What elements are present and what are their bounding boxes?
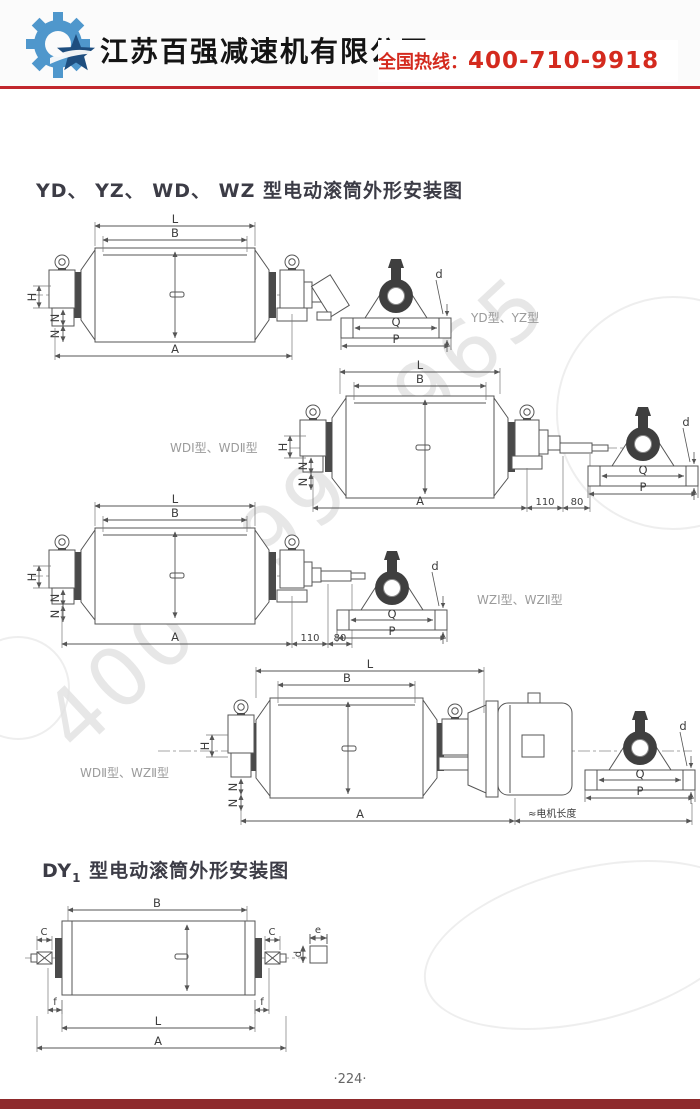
- dim-label-d: d: [293, 951, 304, 957]
- dim-label-motor-length: ≈电机长度: [528, 807, 576, 820]
- caption-wd2-wz2: WDⅡ型、WZⅡ型: [80, 766, 169, 780]
- dim-label-L: L: [367, 657, 374, 671]
- dim-label-B: B: [171, 506, 179, 520]
- dim-label-H: H: [198, 742, 212, 751]
- dim-label-e: e: [315, 925, 321, 936]
- dim-label-A: A: [171, 630, 179, 644]
- dim-label-H: H: [25, 573, 39, 582]
- dim-label-L: L: [172, 212, 179, 226]
- dim-label-A: A: [154, 1034, 162, 1048]
- dim-label-Q: Q: [387, 607, 396, 621]
- dim-label-A: A: [171, 342, 179, 356]
- section-title-yd-yz-wd-wz: YD、 YZ、 WD、 WZ 型电动滚筒外形安装图: [36, 176, 463, 203]
- dim-label-B: B: [153, 896, 161, 910]
- dim-label-d: d: [682, 415, 689, 429]
- dim-label-B: B: [171, 226, 179, 240]
- bearing-pedestal-view: Q P d: [337, 551, 447, 644]
- dim-label-N: N: [296, 462, 310, 471]
- shaft-end-detail: [303, 934, 327, 963]
- page-header: 江苏百强减速机有限公司 全国热线： 400-710-9918: [0, 0, 700, 86]
- hotline-label: 全国热线：: [378, 48, 468, 74]
- dim-label-P: P: [393, 332, 400, 346]
- dim-label-d: d: [679, 719, 686, 733]
- dim-label-L: L: [172, 492, 179, 506]
- dim-label-N: N: [48, 594, 62, 603]
- bearing-pedestal-view: Q P d: [585, 711, 695, 804]
- dim-label-L: L: [155, 1014, 162, 1028]
- dim-label-Q: Q: [391, 315, 400, 329]
- bearing-pedestal-view: Q P d: [341, 259, 451, 352]
- caption-wz1-wz2: WZⅠ型、WZⅡ型: [477, 593, 563, 607]
- header-divider: [0, 86, 700, 89]
- dim-label-80: 80: [334, 633, 347, 644]
- dim-label-d: d: [435, 267, 442, 281]
- dim-label-N: N: [226, 783, 240, 792]
- dim-label-d: d: [431, 559, 438, 573]
- drum-outline: [25, 921, 307, 995]
- dim-label-C: C: [41, 927, 48, 938]
- dim-label-H: H: [276, 443, 290, 452]
- caption-wd1-wd2: WDⅠ型、WDⅡ型: [170, 441, 258, 455]
- dim-label-P: P: [389, 624, 396, 638]
- bearing-pedestal-view: Q P d: [588, 407, 698, 500]
- dim-label-N: N: [226, 799, 240, 808]
- dim-label-Q: Q: [635, 767, 644, 781]
- dim-label-P: P: [637, 784, 644, 798]
- dim-label-f: f: [53, 997, 57, 1008]
- dim-label-L: L: [417, 358, 424, 372]
- drawing-dy1-type: B C C f f L A e d: [15, 888, 385, 1063]
- hotline-number: 400-710-9918: [468, 48, 659, 74]
- dim-label-110: 110: [300, 633, 319, 644]
- dim-label-B: B: [416, 372, 424, 386]
- title-prefix: DY: [42, 860, 72, 882]
- watermark-swoosh: [406, 830, 700, 1060]
- dim-label-H: H: [25, 293, 39, 302]
- title-subscript: 1: [72, 871, 81, 885]
- dim-label-A: A: [356, 807, 364, 821]
- section-title-dy1: DY1 型电动滚筒外形安装图: [42, 856, 289, 885]
- dim-label-C: C: [269, 927, 276, 938]
- drum-outline: [31, 528, 365, 624]
- drawing-wd2-wz2-motor-type: L B H N N A ≈电机长度 Q P d WDⅡ型、WZⅡ型: [60, 653, 700, 837]
- dim-label-B: B: [343, 671, 351, 685]
- dim-label-N: N: [48, 610, 62, 619]
- drawing-yd-yz-type: L B H N N A Q P d YD型、YZ型: [25, 210, 555, 370]
- dim-label-N: N: [296, 478, 310, 487]
- company-logo-icon: [24, 8, 104, 82]
- dim-label-P: P: [640, 480, 647, 494]
- dim-label-Q: Q: [638, 463, 647, 477]
- hotline: 全国热线： 400-710-9918: [378, 40, 678, 82]
- drum-outline: [31, 248, 349, 342]
- page-number: ·224·: [0, 1072, 700, 1087]
- dim-label-N: N: [48, 314, 62, 323]
- footer-bar: [0, 1099, 700, 1109]
- catalog-page: 江苏百强减速机有限公司 全国热线： 400-710-9918 400-799-9…: [0, 0, 700, 1109]
- dim-label-f: f: [260, 997, 264, 1008]
- title-rest: 型电动滚筒外形安装图: [89, 860, 289, 882]
- caption-yd-yz: YD型、YZ型: [470, 311, 539, 325]
- drawing-wz1-wz2-type: L B H N N A 110 80 Q P d: [25, 486, 585, 658]
